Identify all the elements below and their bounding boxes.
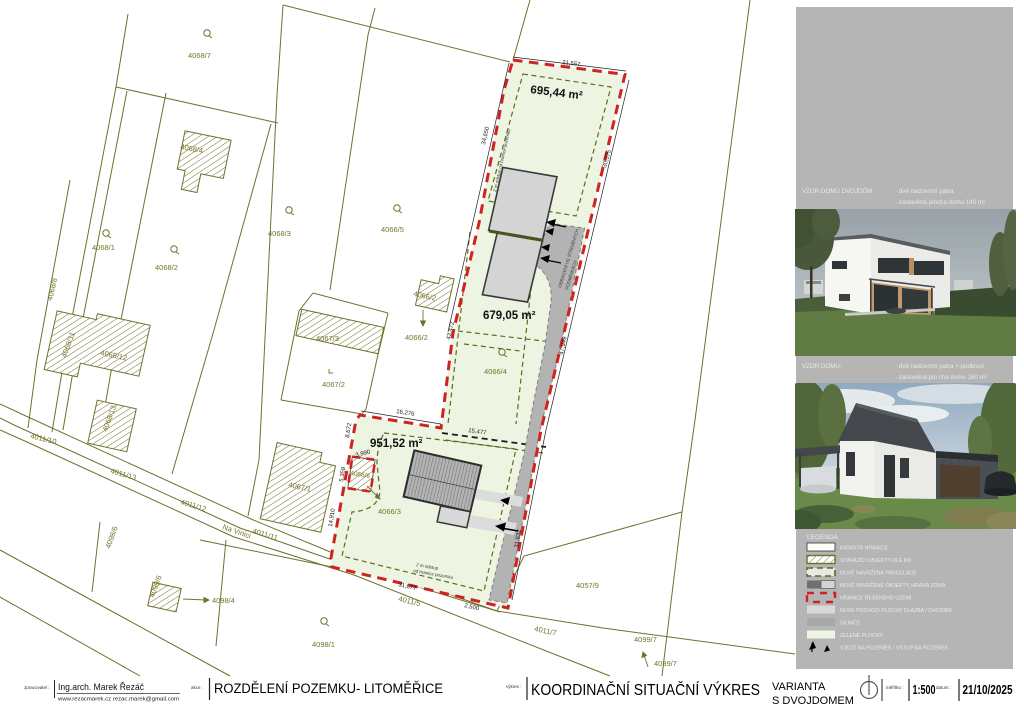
svg-text:NOVĚ NAVRŽENÉ OBJEKTY, HRANA Z: NOVĚ NAVRŽENÉ OBJEKTY, HRANA ZDIVA	[840, 581, 946, 589]
svg-text:ROZDĚLENÍ POZEMKU- LITOMĚŘICE: ROZDĚLENÍ POZEMKU- LITOMĚŘICE	[214, 681, 443, 696]
svg-text:měřítko :: měřítko :	[886, 685, 904, 690]
svg-text:- dvě nadzemní patra + podkrov: - dvě nadzemní patra + podkroví	[895, 363, 985, 370]
svg-text:4068/3: 4068/3	[268, 229, 291, 238]
svg-text:679,05 m²: 679,05 m²	[483, 310, 536, 322]
svg-text:4066/2: 4066/2	[405, 333, 428, 342]
svg-text:STÁVAJÍCÍ OBJEKTY DLE KN: STÁVAJÍCÍ OBJEKTY DLE KN	[840, 557, 911, 564]
svg-text:Ing.arch. Marek Řezáč: Ing.arch. Marek Řezáč	[58, 682, 144, 693]
svg-text:www.rezacmarek.cz rezac.marek: www.rezacmarek.cz rezac.marek@gmail.com	[57, 697, 180, 703]
svg-text:951,52 m²: 951,52 m²	[370, 438, 423, 450]
svg-text:HRANICE ŘEŠENÉHO ÚZEMÍ: HRANICE ŘEŠENÉHO ÚZEMÍ	[840, 594, 912, 602]
svg-text:výkres :: výkres :	[506, 684, 522, 689]
svg-text:S DVOJDOMEM: S DVOJDOMEM	[772, 695, 854, 707]
svg-text:- dvě nadzemní patra: - dvě nadzemní patra	[895, 188, 954, 195]
svg-text:21/10/2025: 21/10/2025	[963, 683, 1013, 697]
svg-text:4066/5: 4066/5	[381, 225, 404, 234]
svg-text:4098/1: 4098/1	[312, 640, 335, 649]
svg-text:1:500: 1:500	[913, 683, 936, 697]
svg-text:4067/3: 4067/3	[316, 334, 339, 343]
svg-text:LEGENDA: LEGENDA	[807, 534, 839, 541]
svg-text:VARIANTA: VARIANTA	[772, 681, 826, 693]
svg-text:4098/4: 4098/4	[212, 596, 235, 605]
svg-text:4099/7: 4099/7	[654, 659, 677, 668]
svg-text:4099/7: 4099/7	[634, 635, 657, 644]
svg-text:VZOR DOMU DVOJDŮM:: VZOR DOMU DVOJDŮM:	[802, 188, 874, 195]
svg-text:4068/2: 4068/2	[155, 263, 178, 272]
svg-text:4067/2: 4067/2	[322, 380, 345, 389]
svg-text:VZOR DOMU:: VZOR DOMU:	[802, 363, 842, 370]
svg-text:SILNICE: SILNICE	[840, 621, 861, 627]
svg-text:- zastavěná plo cha domu 160 m: - zastavěná plo cha domu 160 m²	[895, 374, 987, 381]
svg-text:ZELENÉ PLOCHY: ZELENÉ PLOCHY	[840, 632, 883, 639]
svg-text:zpracovatel :: zpracovatel :	[24, 685, 50, 690]
svg-text:VJEZD NA POZEMEK / VSTUP NA PO: VJEZD NA POZEMEK / VSTUP NA POZEMEK	[840, 646, 949, 652]
svg-text:4066/3: 4066/3	[378, 507, 401, 516]
svg-text:akce :: akce :	[191, 685, 203, 690]
svg-text:NOVĚ NAVRŽENÁ PARCELACE: NOVĚ NAVRŽENÁ PARCELACE	[840, 569, 917, 577]
svg-text:datum :: datum :	[936, 685, 951, 690]
svg-text:KATASTR HRANICE: KATASTR HRANICE	[840, 546, 888, 552]
svg-text:NOVÉ POCHOZÍ PLOCHY DLAŽBA / C: NOVÉ POCHOZÍ PLOCHY DLAŽBA / CHODNÍK	[840, 606, 953, 614]
svg-text:4068/1: 4068/1	[92, 243, 115, 252]
svg-text:4057/9: 4057/9	[576, 581, 599, 590]
svg-text:- zastavěná plocha domu 140 m²: - zastavěná plocha domu 140 m²	[895, 199, 985, 206]
svg-text:4068/7: 4068/7	[188, 51, 211, 60]
svg-text:4066/4: 4066/4	[484, 367, 507, 376]
svg-text:KOORDINAČNÍ SITUAČNÍ VÝKRES: KOORDINAČNÍ SITUAČNÍ VÝKRES	[531, 682, 760, 699]
